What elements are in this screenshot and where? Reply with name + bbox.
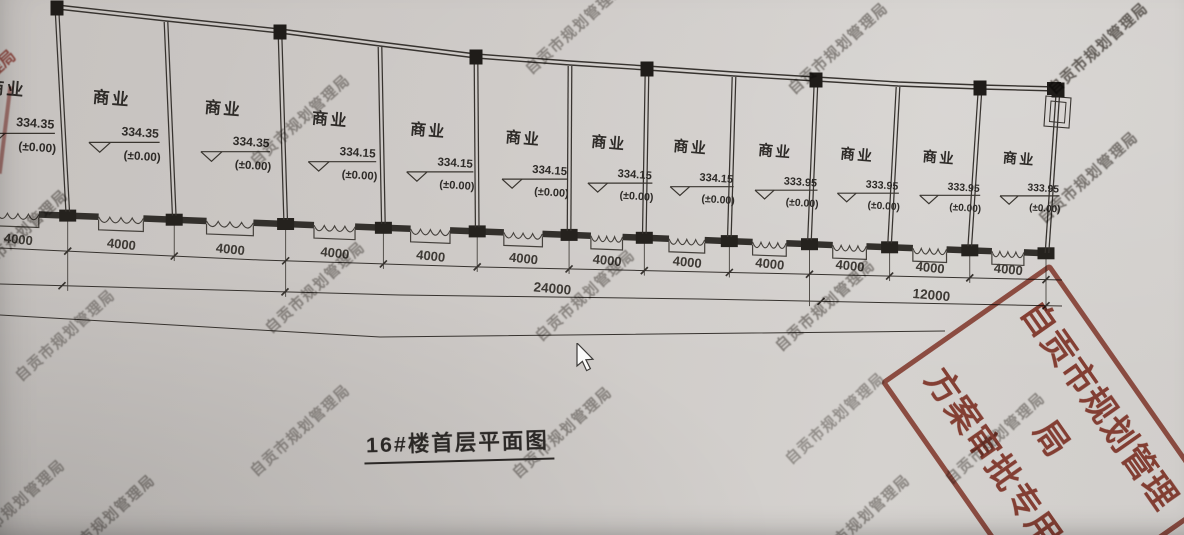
- photographed-floor-plan: 商业334.35(±0.00)4000商业334.35(±0.00)4000商业…: [0, 0, 1184, 535]
- column-block: [166, 214, 183, 226]
- partition-wall: [571, 66, 572, 231]
- elevation-suffix: (±0.00): [619, 190, 654, 204]
- elevation-value: 334.15: [699, 172, 733, 186]
- elevation-triangle-icon: [670, 187, 689, 196]
- room-label: 商业: [590, 133, 627, 154]
- elevation-suffix: (±0.00): [123, 149, 161, 165]
- door-swing-arcs: [504, 232, 542, 239]
- column-block: [721, 235, 738, 247]
- column: [641, 62, 654, 77]
- column: [274, 25, 287, 40]
- bay-dimension: 4000: [993, 260, 1023, 278]
- partition-wall: [474, 59, 475, 227]
- drawing-title: 16#楼首层平面图: [364, 424, 555, 465]
- column: [470, 50, 483, 65]
- column-block: [375, 222, 392, 234]
- partition-wall: [808, 82, 815, 240]
- partition-wall: [168, 22, 176, 216]
- column-block: [469, 225, 486, 237]
- elevation-value: 334.15: [532, 164, 568, 178]
- elevation-suffix: (±0.00): [701, 193, 735, 207]
- mouse-cursor: [576, 343, 596, 378]
- dimension-line-2: [0, 284, 1062, 306]
- column-block: [277, 218, 294, 230]
- column-block: [881, 241, 898, 253]
- elevation-triangle-icon: [1000, 196, 1018, 204]
- partition-wall: [888, 87, 896, 243]
- elevation-value: 334.15: [339, 145, 376, 161]
- elevation-triangle-icon: [837, 193, 856, 202]
- room-label: 商业: [204, 98, 243, 120]
- overall-dimension: 24000: [533, 279, 572, 297]
- door-swing-arcs: [833, 245, 867, 251]
- elevation-value: 333.95: [947, 181, 980, 195]
- elevation-suffix: (±0.00): [534, 186, 570, 200]
- bay-dimension: 4000: [508, 249, 538, 267]
- elevation-value: 333.95: [783, 175, 817, 189]
- bay-dimension: 4000: [835, 257, 865, 275]
- partition-wall: [811, 82, 818, 240]
- room-label: 商业: [92, 86, 132, 109]
- column: [1052, 83, 1065, 98]
- door-swing-arcs: [913, 248, 947, 254]
- elevation-suffix: (±0.00): [439, 179, 475, 193]
- door-swing-arcs: [99, 217, 144, 224]
- elevation-suffix: (±0.00): [341, 169, 378, 183]
- elevation-value: 334.35: [121, 124, 160, 141]
- elevation-triangle-icon: [502, 179, 522, 188]
- column-block: [801, 238, 818, 250]
- arrow-pointer-icon: [577, 343, 593, 371]
- column: [51, 1, 64, 16]
- bay-dimension: 4000: [320, 244, 350, 262]
- door-swing-arcs: [591, 236, 623, 242]
- room-label: 商业: [311, 108, 350, 130]
- door-recess: [207, 224, 254, 236]
- bay-dimension: 4000: [915, 259, 945, 277]
- overall-dimension: 12000: [912, 286, 951, 304]
- partition-wall: [567, 66, 568, 231]
- partition-wall: [164, 22, 172, 216]
- partition-wall: [378, 47, 381, 224]
- door-swing-arcs: [411, 229, 451, 236]
- column-block: [961, 244, 978, 256]
- partition-wall: [382, 47, 385, 224]
- room-label: 商业: [673, 137, 709, 158]
- column-block: [561, 229, 578, 241]
- elevation-triangle-icon: [308, 162, 329, 171]
- column: [974, 81, 987, 96]
- bay-dimension: 4000: [106, 235, 136, 253]
- door-recess: [591, 239, 623, 250]
- door-recess: [0, 216, 39, 228]
- elevation-suffix: (±0.00): [867, 200, 900, 213]
- elevation-triangle-icon: [89, 142, 111, 152]
- elevation-triangle-icon: [588, 183, 608, 192]
- bay-dimension: 4000: [592, 251, 622, 269]
- room-label: 商业: [505, 127, 542, 149]
- room-label: 商业: [757, 141, 793, 162]
- bay-dimension: 4000: [215, 240, 245, 258]
- partition-wall: [646, 71, 649, 234]
- elevation-triangle-icon: [920, 195, 939, 203]
- door-recess: [411, 232, 450, 244]
- column-block: [59, 210, 76, 222]
- elevation-value: 333.95: [1027, 183, 1060, 196]
- elevation-triangle-icon: [755, 190, 774, 199]
- elevation-value: 333.95: [865, 179, 898, 193]
- door-swing-arcs: [207, 221, 254, 228]
- column: [810, 73, 823, 88]
- elevation-suffix: (±0.00): [785, 197, 819, 210]
- column-block: [636, 232, 653, 244]
- dimension-line-3: [0, 315, 945, 337]
- partition-wall: [643, 71, 646, 234]
- bay-dimension: 4000: [755, 255, 785, 273]
- bay-dimension: 4000: [672, 253, 702, 271]
- elevation-suffix: (±0.00): [18, 139, 57, 156]
- door-recess: [669, 242, 705, 253]
- door-swing-arcs: [992, 251, 1024, 257]
- partition-wall: [478, 59, 479, 227]
- elevation-suffix: (±0.00): [234, 159, 271, 174]
- room-label: 商业: [1002, 149, 1036, 168]
- elevation-triangle-icon: [201, 152, 222, 162]
- elevation-value: 334.35: [232, 134, 270, 151]
- elevation-value: 334.15: [617, 168, 652, 182]
- bay-dimension: 4000: [416, 247, 446, 265]
- elevation-value: 334.35: [16, 115, 55, 132]
- door-recess: [314, 228, 355, 240]
- door-recess: [504, 235, 543, 246]
- elevation-suffix: (±0.00): [949, 202, 982, 215]
- door-swing-arcs: [0, 213, 39, 220]
- room-label: 商业: [922, 147, 957, 168]
- top-wall: [57, 5, 1058, 87]
- elevation-triangle-icon: [407, 172, 427, 181]
- door-swing-arcs: [669, 239, 705, 245]
- partition-wall: [891, 87, 899, 243]
- door-swing-arcs: [753, 242, 787, 248]
- bay-dimension: 4000: [3, 230, 33, 248]
- elevation-value: 334.15: [437, 156, 474, 170]
- room-label: 商业: [840, 144, 875, 165]
- elevation-suffix: (±0.00): [1029, 202, 1061, 215]
- room-label: 商业: [409, 119, 447, 141]
- room-label: 商业: [0, 77, 27, 100]
- door-recess: [99, 220, 144, 232]
- door-swing-arcs: [314, 225, 355, 232]
